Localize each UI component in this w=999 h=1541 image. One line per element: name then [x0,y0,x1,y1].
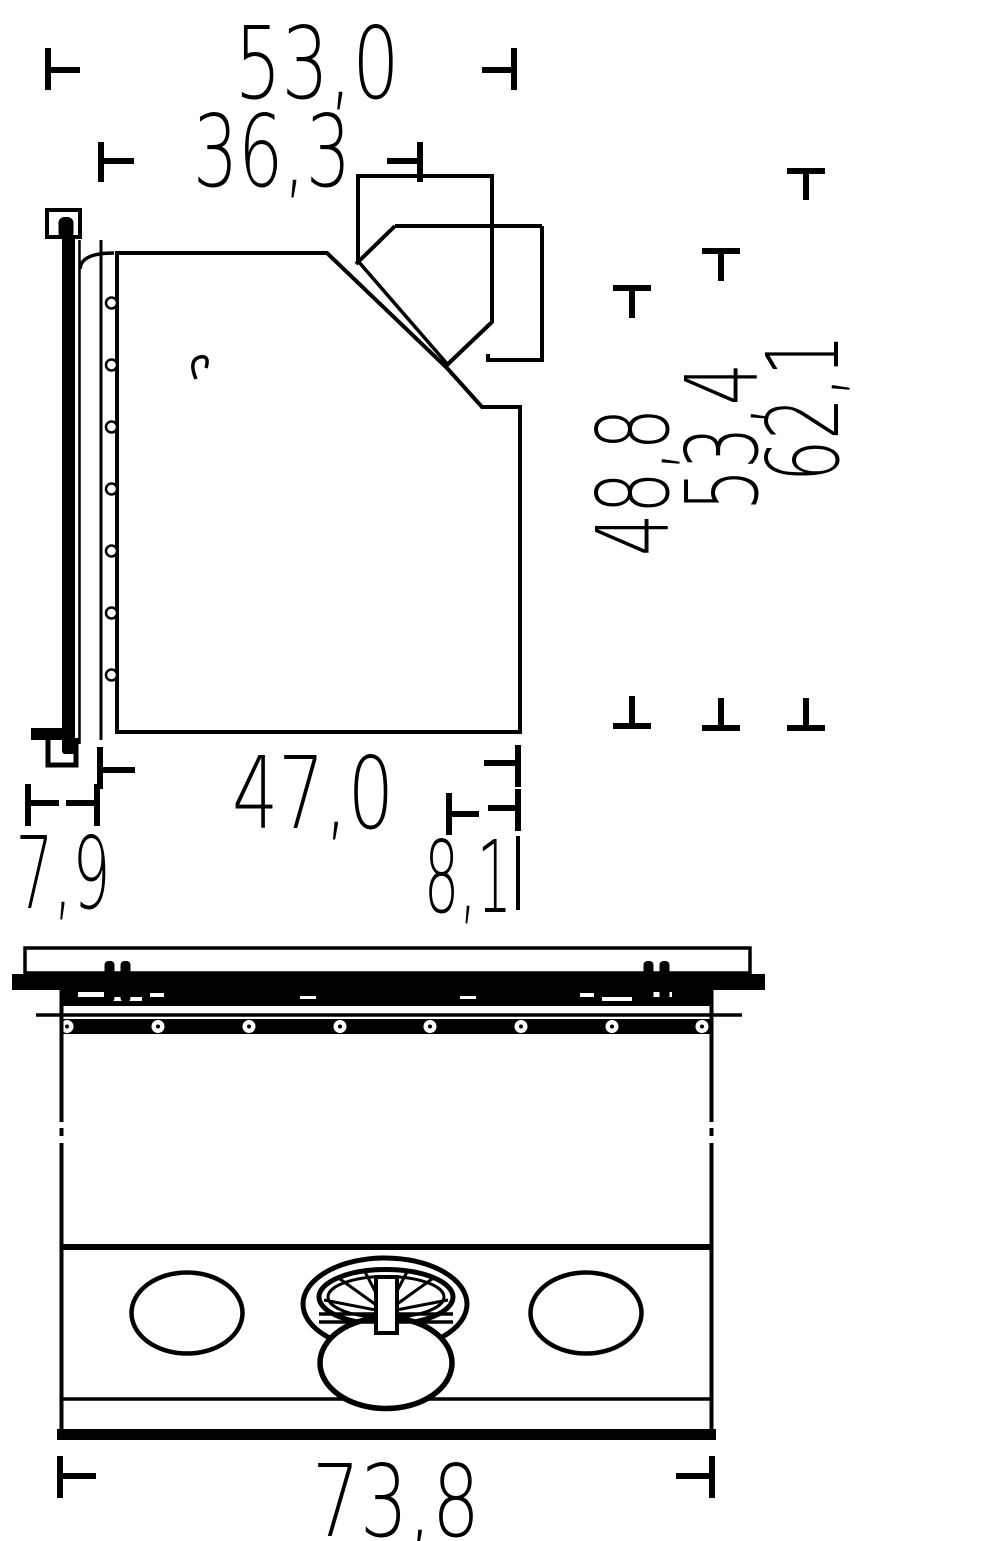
hinge-slit [602,997,632,1001]
hinge-pin [121,961,131,1002]
flue-diagonal-lower [448,322,492,364]
hinge-pin [644,961,654,1002]
hinge-slit [150,993,164,997]
tick-36-3-left [101,142,134,182]
edge-slit [57,1136,66,1143]
dim-label-7-9: 7,9 [16,815,111,932]
left-oval-opening [132,1273,243,1354]
technical-drawing-page: 53,0 36,3 48,8 53,4 62,1 47,0 7,9 8,1 73… [0,0,999,1541]
bolt-dot [700,1025,704,1029]
hinge-slit [300,996,316,999]
flue-rear-box [488,226,542,360]
bolt-circle [106,670,117,681]
tick-73-8-right [676,1456,712,1498]
side-view-body-outline [117,253,520,732]
bolt-dot [338,1025,342,1029]
bolt-dot [428,1025,432,1029]
dim-label-73-8: 73,8 [312,1443,480,1541]
door-glass-bar [62,236,75,754]
tick-53-4-bottom [702,698,740,728]
hinge-slit [580,993,594,997]
tick-47-0-left [100,747,135,789]
body-inner-diagonal [358,261,449,366]
door-hinge-pin-top [59,217,74,239]
flue-diagonal-upper [356,226,395,264]
hinge-slit [460,996,476,999]
hinge-slit [78,992,104,997]
body-squiggle-mark [193,357,207,379]
plan-view [12,948,765,1440]
bolt-dot [610,1025,614,1029]
bolt-dot [65,1025,69,1029]
right-oval-opening [531,1273,642,1354]
dim-label-36-3: 36,3 [193,93,351,210]
tick-73-8-left [60,1456,96,1498]
edge-slit [707,1136,716,1143]
tick-47-0-right [484,745,518,787]
side-view-top-fillet [80,253,114,269]
hinge-pin [105,961,115,1002]
dimension-drawing: 53,0 36,3 48,8 53,4 62,1 47,0 7,9 8,1 73… [0,0,999,1541]
plan-damper-assembly [303,1258,467,1409]
bolt-circle [106,298,117,309]
damper-handle [376,1277,397,1333]
dim-label-47-0: 47,0 [232,735,394,852]
tick-62-1-bottom [787,698,825,728]
side-view-door-assembly [31,210,80,765]
bolt-dot [519,1025,523,1029]
dim-label-62-1: 62,1 [745,334,862,482]
tick-62-1-top [787,171,825,200]
tick-53-4-top [702,251,740,281]
edge-slit [57,1122,66,1128]
bolt-circle [106,360,117,371]
tick-48-8-bottom [613,696,651,726]
dim-label-8-1: 8,1 [424,819,512,936]
bolt-dot [156,1025,160,1029]
edge-slit [707,1122,716,1128]
side-view-flue-assembly [356,176,542,366]
tick-48-8-top [613,288,651,318]
bolt-circle [106,484,117,495]
bolt-circle [106,608,117,619]
bolt-dot [247,1025,251,1029]
bolt-circle [106,422,117,433]
tick-53-0-left [48,48,80,90]
bolt-circle [106,546,117,557]
hinge-pin [660,961,670,1002]
plan-bottom-band [57,1429,716,1440]
tick-53-0-right [482,48,514,90]
plan-top-plate [25,948,750,973]
side-view [31,176,542,765]
